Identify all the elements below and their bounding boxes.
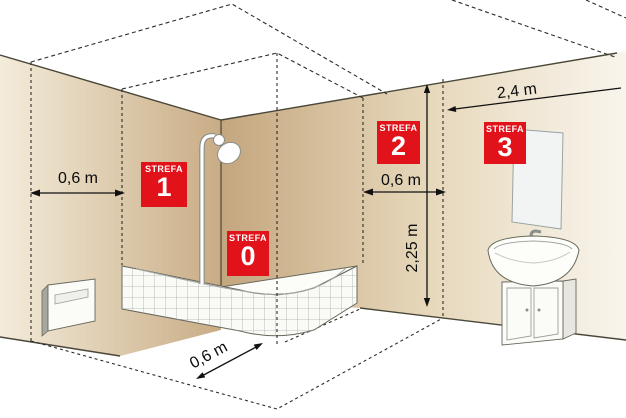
- dim-right-wall-width: 0,6 m: [381, 172, 421, 190]
- dim-left-wall-width: 0,6 m: [58, 170, 98, 188]
- zone-0-number: 0: [227, 244, 269, 270]
- zone-3-number: 3: [484, 135, 526, 161]
- zone-label-strefa-1: STREFA 1: [141, 162, 187, 207]
- bathroom-zones-diagram: STREFA 0 STREFA 1 STREFA 2 STREFA 3 0,6 …: [0, 0, 626, 418]
- zone-1-number: 1: [141, 175, 187, 201]
- zone-label-strefa-3: STREFA 3: [484, 122, 526, 164]
- diagram-canvas: [0, 0, 626, 418]
- zone-label-strefa-0: STREFA 0: [227, 231, 269, 276]
- zone-label-strefa-2: STREFA 2: [377, 121, 420, 164]
- dim-zone-height: 2,25 m: [404, 224, 422, 273]
- zone-2-number: 2: [377, 134, 420, 160]
- washbasin-cabinet-icon: [488, 231, 579, 345]
